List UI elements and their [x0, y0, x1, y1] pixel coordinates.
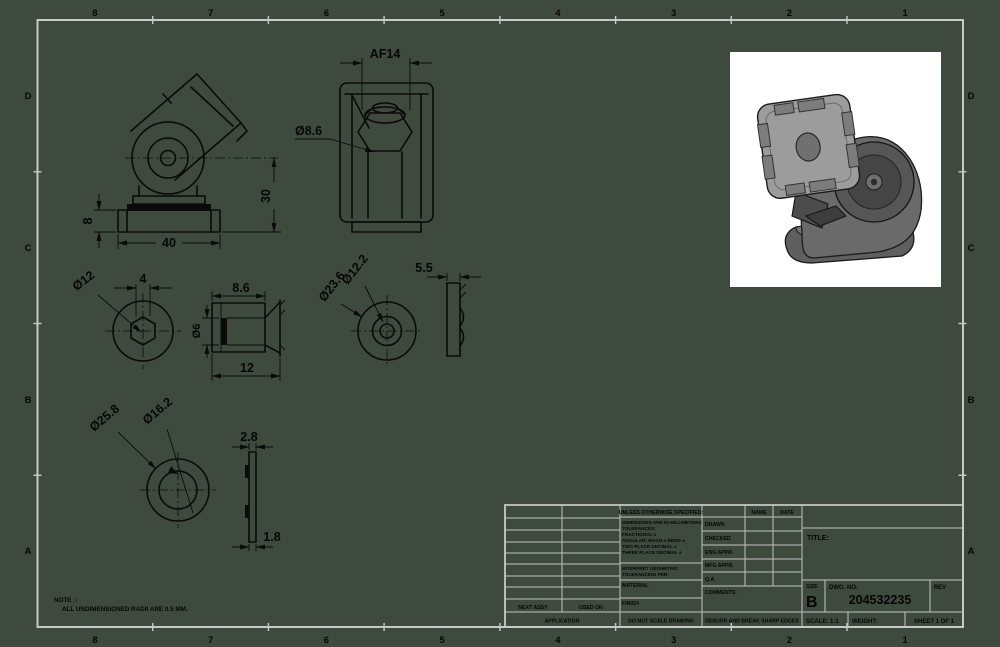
- material-label: MATERIAL: [622, 583, 649, 589]
- tolerance-line: FRACTIONAL ±: [622, 532, 657, 537]
- size-label: SIZE: [806, 584, 818, 590]
- interpret-line: INTERPRET GEOMETRIC: [622, 566, 679, 571]
- dim-label-depth: 8.6: [232, 281, 249, 295]
- zone-label: 4: [555, 8, 561, 19]
- zone-label: 1: [902, 8, 908, 19]
- zone-label: 8: [92, 635, 97, 646]
- dim-label-washer-outer: Ø23.6: [316, 269, 348, 304]
- zone-label: D: [968, 91, 975, 102]
- interpret-line: TOLERANCING PER:: [622, 572, 669, 577]
- title-label: TITLE:: [807, 535, 829, 542]
- view-front-elevation: 8 40 30: [81, 74, 282, 250]
- view-large-washer: Ø25.8 Ø16.2: [87, 395, 216, 528]
- dim-label-across-flats: AF14: [370, 47, 401, 61]
- view-hex-insert: 4 Ø12: [70, 268, 181, 369]
- render-boss-hole: [871, 179, 877, 185]
- zone-label: C: [968, 243, 975, 254]
- leader-arrowhead: [168, 466, 178, 474]
- note-title: NOTE :-: [54, 597, 77, 604]
- base-plate-section: [127, 204, 211, 211]
- tolerance-line: TWO PLACE DECIMAL ±: [622, 544, 677, 549]
- dim-label-hex-width: 4: [140, 272, 147, 286]
- weight-label: WEIGHT:: [852, 619, 877, 625]
- zone-label: B: [25, 395, 32, 406]
- dim-label-clip-top: 2.8: [240, 430, 257, 444]
- do-not-scale-label: DO NOT SCALE DRAWING: [628, 619, 694, 625]
- zone-label: 5: [439, 8, 445, 19]
- zone-label: 7: [208, 635, 213, 646]
- view-insert-side: 8.6 Ø6 12: [191, 281, 285, 381]
- dim-label-height: 30: [259, 189, 273, 203]
- zone-label: C: [25, 243, 32, 254]
- zone-label: 6: [324, 635, 329, 646]
- dim-label-bore-dia: Ø6: [191, 324, 203, 339]
- approval-row-label: ENG APPR.: [705, 550, 734, 556]
- zone-label: 7: [208, 8, 213, 19]
- zone-label: A: [25, 546, 32, 557]
- drawing-note: NOTE :- ALL UNDIMENSIONED RADII ARE 0.5 …: [54, 597, 188, 613]
- dim-label-washer-thickness: 5.5: [415, 261, 432, 275]
- view-washer-side: 5.5: [415, 261, 481, 356]
- scale-value: SCALE: 1:1: [806, 619, 839, 625]
- zone-label: A: [968, 546, 975, 557]
- tolerance-line: TOLERANCES:: [622, 526, 656, 531]
- zone-label: 2: [787, 8, 792, 19]
- bore-section: [221, 318, 227, 345]
- title-block: UNLESS OTHERWISE SPECIFIED: DIMENSIONS A…: [505, 505, 963, 627]
- approval-row-label: CHECKED: [705, 536, 731, 542]
- zone-label: 8: [92, 8, 97, 19]
- zone-label: 6: [324, 8, 329, 19]
- cad-drawing-canvas: 8 7 6 5 4 3 2 1 8 7 6 5 4 3 2 1 D C B A …: [0, 0, 1000, 647]
- dim-label-hole-dia: Ø8.6: [295, 124, 322, 138]
- clip-lug: [245, 505, 250, 518]
- dim-label-lwasher-inner: Ø16.2: [140, 395, 175, 428]
- rev-label: REV: [934, 585, 946, 591]
- sheet-label: SHEET 1 OF 1: [914, 619, 955, 625]
- zone-label: 3: [671, 8, 676, 19]
- render-clip: [774, 103, 794, 116]
- clip-lug: [245, 465, 250, 478]
- application-label: APPLICATION: [545, 619, 580, 625]
- date-header: DATE: [780, 510, 794, 516]
- tolerance-line: THREE PLACE DECIMAL ±: [622, 550, 682, 555]
- dim-label-length: 12: [240, 361, 254, 375]
- zone-label: 5: [439, 635, 445, 646]
- approval-row-label: Q.A.: [705, 577, 716, 583]
- zone-label: 2: [787, 635, 792, 646]
- tolerance-line: DIMENSIONS ARE IN MILLIMETERS: [622, 520, 702, 525]
- next-assy-label: NEXT ASSY: [518, 605, 548, 611]
- dwg-no-value: 204532235: [849, 593, 912, 607]
- dim-label-base-height: 8: [81, 217, 95, 224]
- zone-label: 4: [555, 635, 561, 646]
- zone-label: B: [968, 395, 975, 406]
- drawing-sheet: 8 7 6 5 4 3 2 1 8 7 6 5 4 3 2 1 D C B A …: [0, 0, 1000, 647]
- dwg-no-label: DWG. NO.: [829, 585, 858, 591]
- dim-label-clip-bottom: 1.8: [263, 530, 280, 544]
- tolerance-header: UNLESS OTHERWISE SPECIFIED:: [619, 510, 704, 516]
- approval-row-label: MFG APPR.: [705, 563, 734, 569]
- zone-label: 3: [671, 635, 676, 646]
- approval-row-label: COMMENTS:: [705, 590, 737, 596]
- size-value: B: [806, 594, 818, 611]
- dim-label-lwasher-outer: Ø25.8: [87, 402, 122, 435]
- view-washer: Ø12.2 Ø23.6: [316, 252, 423, 367]
- used-on-label: USED ON: [579, 605, 603, 611]
- isometric-render: [730, 52, 941, 287]
- view-top-nut: AF14 Ø8.6: [295, 47, 433, 232]
- note-text: ALL UNDIMENSIONED RADII ARE 0.5 MM.: [62, 606, 188, 613]
- finish-label: FINISH: [622, 601, 639, 607]
- dim-label-width: 40: [162, 236, 176, 250]
- dim-label-insert-dia: Ø12: [70, 268, 97, 294]
- name-header: NAME: [751, 510, 767, 516]
- title-block-grid: [505, 505, 963, 627]
- approval-row-label: DRAWN: [705, 522, 725, 528]
- render-clip: [785, 183, 805, 196]
- tolerance-line: ANGULAR: MACH ± BEND ±: [622, 538, 685, 543]
- view-clip-side: 2.8 1.8: [232, 430, 281, 551]
- zone-label: D: [25, 91, 32, 102]
- deburr-label: DEBURR AND BREAK SHARP EDGES: [705, 619, 799, 625]
- zone-label: 1: [902, 635, 908, 646]
- render-plate-group: [755, 93, 862, 200]
